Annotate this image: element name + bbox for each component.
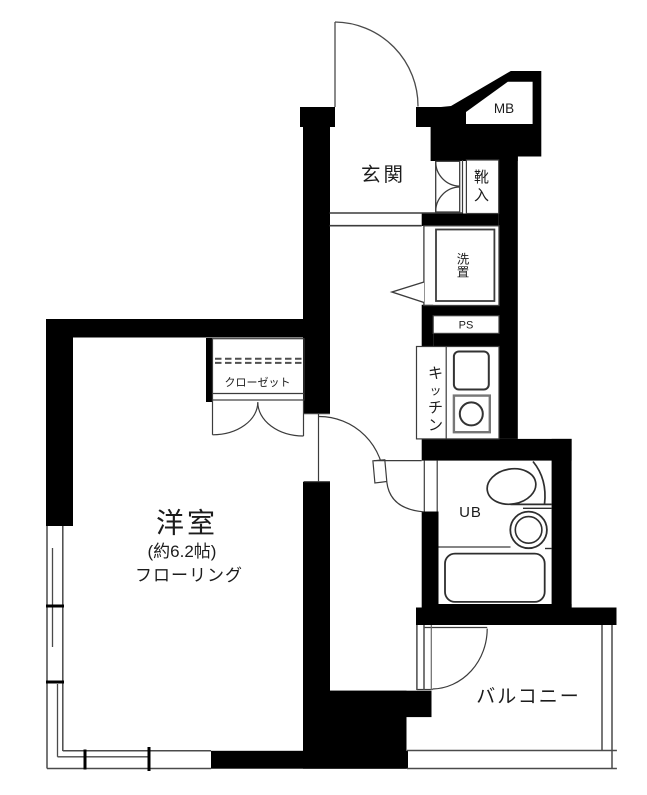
svg-text:キ: キ: [428, 365, 443, 382]
svg-text:置: 置: [457, 266, 470, 280]
svg-text:MB: MB: [494, 101, 514, 116]
svg-text:ン: ン: [428, 417, 443, 434]
svg-text:洗: 洗: [457, 253, 470, 267]
svg-text:クローゼット: クローゼット: [225, 376, 291, 389]
svg-text:靴: 靴: [474, 169, 489, 186]
svg-text:UB: UB: [459, 504, 482, 521]
svg-text:玄関: 玄関: [361, 164, 406, 186]
svg-text:チ: チ: [428, 400, 443, 417]
svg-text:入: 入: [474, 187, 489, 204]
svg-text:(約6.2帖): (約6.2帖): [148, 542, 217, 561]
svg-text:洋室: 洋室: [156, 508, 218, 539]
svg-text:ッ: ッ: [429, 384, 441, 398]
svg-text:バルコニー: バルコニー: [476, 687, 581, 708]
svg-text:フローリング: フローリング: [135, 566, 243, 585]
svg-text:PS: PS: [459, 320, 474, 332]
